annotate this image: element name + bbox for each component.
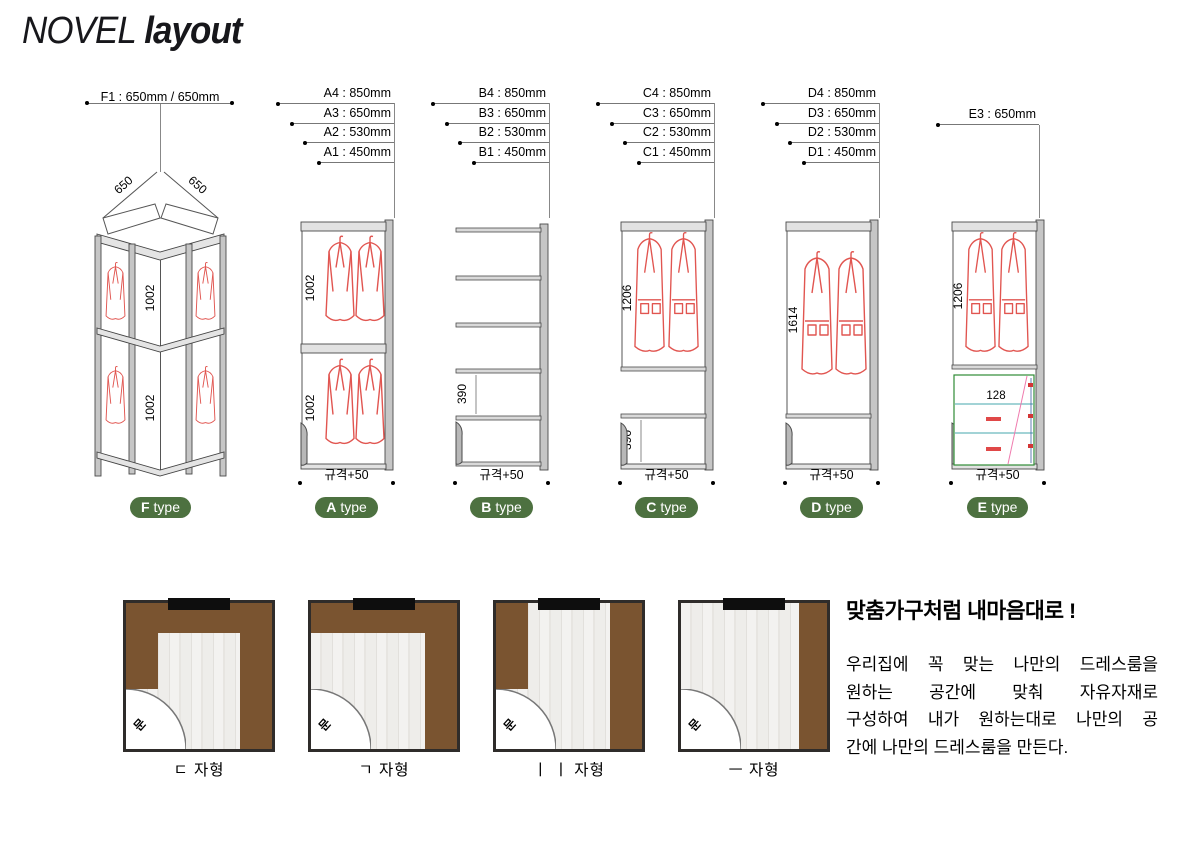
clothes-sketch <box>836 252 866 374</box>
clothes-sketch <box>106 263 125 320</box>
description-block: 맞춤가구처럼 내마음대로 ! 우리집에 꼭 맞는 나만의 드레스룸을 원하는 공… <box>846 594 1180 761</box>
unit-e-diagram: 1206 128 <box>950 218 1045 473</box>
description-line: 원하는 공간에 맞춰 자유자재로 <box>846 679 1158 707</box>
dim-390: 390 <box>455 384 469 404</box>
dim-connector-a <box>394 103 395 218</box>
clothes-sketch <box>196 263 215 320</box>
clothes-sketch <box>966 233 995 352</box>
room-plan-u-shape: 문 <box>123 600 275 752</box>
dim-label-a4: A4 : 850mm <box>277 86 394 100</box>
dim-label-e3: E3 : 650mm <box>937 107 1039 121</box>
dim-label-a2: A2 : 530mm <box>304 125 394 139</box>
clothes-sketch <box>356 236 384 320</box>
badge-b-type: Btype <box>454 497 549 518</box>
badge-a-type: Atype <box>299 497 394 518</box>
dim-label-b4: B4 : 850mm <box>432 86 549 100</box>
dim-label-d2: D2 : 530mm <box>789 125 879 139</box>
unit-c-diagram: 1206 390 <box>619 218 714 473</box>
foot-bracket <box>621 423 627 465</box>
dim-label-b1: B1 : 450mm <box>473 145 549 159</box>
page: NOVELlayout F1 : 650mm / 650mm 650 650 <box>0 0 1200 848</box>
dim-1002: 1002 <box>143 284 157 311</box>
dim-1206: 1206 <box>620 284 634 311</box>
drawer-unit: 128 <box>954 375 1034 465</box>
dim-1002: 1002 <box>143 394 157 421</box>
dim-1614: 1614 <box>786 306 800 333</box>
dim-dot <box>230 101 234 105</box>
window-bar <box>353 598 415 610</box>
window-bar <box>538 598 600 610</box>
dim-connector-c <box>714 103 715 218</box>
dim-label-d1: D1 : 450mm <box>803 145 879 159</box>
dim-label-a3: A3 : 650mm <box>291 106 394 120</box>
room-plan-straight-shape: 문 <box>678 600 830 752</box>
badge-f-type: Ftype <box>93 497 228 518</box>
description-line: 우리집에 꼭 맞는 나만의 드레스룸을 <box>846 651 1158 679</box>
clothes-sketch <box>326 236 354 320</box>
unit-f-diagram: 650 650 1002 1002 <box>93 168 228 483</box>
unit-a-diagram: 1002 1002 <box>299 218 394 473</box>
dim-label-f1: F1 : 650mm / 650mm <box>85 90 235 104</box>
dim-label-d3: D3 : 650mm <box>776 106 879 120</box>
dim-label-d4: D4 : 850mm <box>762 86 879 100</box>
description-body: 우리집에 꼭 맞는 나만의 드레스룸을 원하는 공간에 맞춰 자유자재로 구성하… <box>846 651 1180 761</box>
clothes-sketch <box>669 233 698 352</box>
window-bar <box>723 598 785 610</box>
title-brand: NOVEL <box>22 10 136 52</box>
dim-label-c1: C1 : 450mm <box>638 145 714 159</box>
description-line: 간에 나만의 드레스룸을 만든다. <box>846 734 1158 762</box>
description-line: 구성하여 내가 원하는대로 나만의 공 <box>846 706 1158 734</box>
foot-bracket <box>301 423 307 465</box>
dim-label-c2: C2 : 530mm <box>624 125 714 139</box>
description-title: 맞춤가구처럼 내마음대로 ! <box>846 594 1180 625</box>
dim-label-c4: C4 : 850mm <box>597 86 714 100</box>
width-dim-c: 규격+50 <box>619 464 714 482</box>
foot-bracket <box>456 422 462 464</box>
unit-d-diagram: 1614 <box>784 218 879 473</box>
clothes-sketch <box>999 233 1028 352</box>
clothes-sketch <box>802 252 832 374</box>
dim-1002: 1002 <box>303 394 317 421</box>
width-dim-e: 규격+50 <box>950 464 1045 482</box>
badge-e-type: Etype <box>950 497 1045 518</box>
clothes-sketch <box>356 359 384 443</box>
foot-bracket <box>786 423 792 465</box>
room-label-l-shape: ㄱ 자형 <box>308 758 460 780</box>
dim-connector-e <box>1039 125 1040 218</box>
width-dim-b: 규격+50 <box>454 464 549 482</box>
badge-d-type: Dtype <box>784 497 879 518</box>
dim-label-b2: B2 : 530mm <box>459 125 549 139</box>
dim-label-b3: B3 : 650mm <box>446 106 549 120</box>
room-label-u-shape: ㄷ 자형 <box>123 758 275 780</box>
dim-connector-b <box>549 103 550 218</box>
unit-b-diagram: 390 <box>454 218 549 473</box>
room-plan-parallel-shape: 문 <box>493 600 645 752</box>
width-dim-a: 규격+50 <box>299 464 394 482</box>
window-bar <box>168 598 230 610</box>
dim-1002: 1002 <box>303 274 317 301</box>
width-dim-d: 규격+50 <box>784 464 879 482</box>
dim-dot <box>85 101 89 105</box>
clothes-sketch <box>196 367 215 424</box>
clothes-sketch <box>106 367 125 424</box>
room-label-straight-shape: ㅡ 자형 <box>678 758 830 780</box>
dim-1206: 1206 <box>951 282 965 309</box>
page-title: NOVELlayout <box>22 10 242 53</box>
room-plan-l-shape: 문 <box>308 600 460 752</box>
title-word: layout <box>144 10 241 52</box>
clothes-sketch <box>635 233 664 352</box>
dim-connector-f <box>160 104 161 172</box>
badge-c-type: Ctype <box>619 497 714 518</box>
dim-connector-d <box>879 103 880 218</box>
room-label-parallel-shape: ㅣ ㅣ 자형 <box>493 758 645 780</box>
dim-128: 128 <box>986 390 1005 402</box>
clothes-sketch <box>326 359 354 443</box>
dim-label-a1: A1 : 450mm <box>318 145 394 159</box>
dim-label-c3: C3 : 650mm <box>611 106 714 120</box>
